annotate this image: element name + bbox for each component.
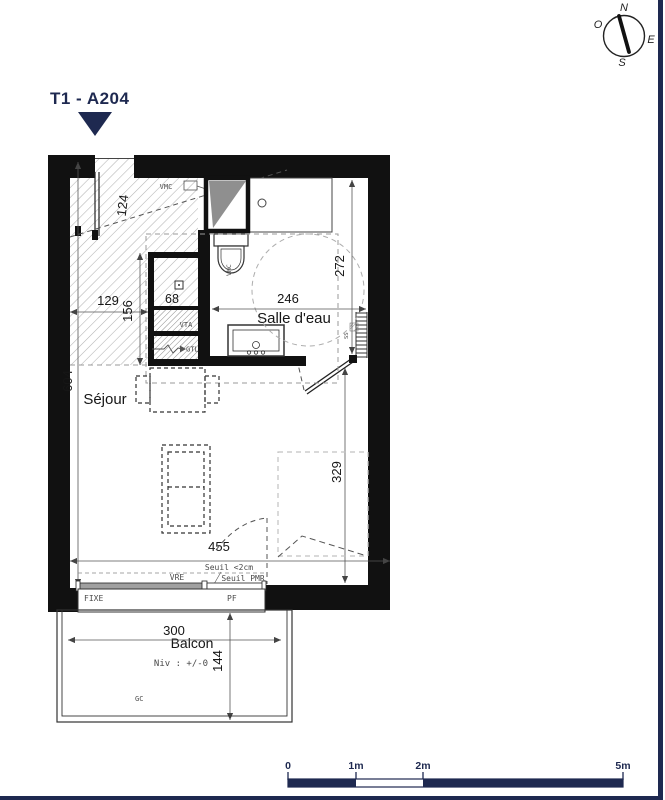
room-label-bathroom: Salle d'eau (257, 310, 331, 327)
floorplan-svg: T1 - A204 N E S O (0, 0, 665, 800)
compass-south: S (618, 57, 626, 69)
threshold-pmr-label: Seuil PMR (221, 574, 265, 583)
dim-604: 604 (60, 370, 75, 392)
dim-272: 272 (332, 255, 347, 277)
pmr-threshold (207, 583, 264, 589)
dim-129: 129 (97, 293, 119, 308)
room-label-living: Séjour (83, 391, 126, 408)
floorplan-sheet: T1 - A204 N E S O (0, 0, 665, 800)
vmc-label: VMC (160, 183, 173, 191)
vre-label: VRE (170, 573, 185, 582)
scale-bar: 0 1m 2m 5m (285, 760, 631, 787)
bathroom-door (298, 355, 357, 394)
dim-124: 124 (114, 194, 132, 217)
shower (206, 178, 332, 232)
plan-title: T1 - A204 (50, 89, 130, 108)
toilet: VMC (214, 234, 248, 276)
bed-inner (168, 452, 204, 526)
dim-246: 246 (277, 291, 299, 306)
scale-2m: 2m (415, 760, 430, 772)
scale-5m: 5m (615, 760, 630, 772)
scale-0: 0 (285, 760, 291, 772)
gtl-label: GTL (186, 346, 199, 354)
compass-east: E (647, 34, 655, 46)
fixe-label: FIXE (84, 594, 103, 603)
level-label: Niv : +/-0 (154, 659, 208, 669)
compass-north: N (620, 2, 628, 14)
bed-outer (162, 445, 210, 533)
sheet-border-bottom (0, 796, 663, 800)
sheet-border-right (658, 0, 663, 800)
vanity-sink (228, 325, 284, 356)
pf-label: PF (227, 594, 237, 603)
scale-1m: 1m (348, 760, 363, 772)
unit-marker-triangle-icon (78, 112, 112, 136)
table (150, 368, 205, 412)
compass-west: O (594, 19, 603, 31)
dim-144: 144 (210, 650, 225, 672)
dim-156: 156 (120, 300, 135, 322)
compass-rose-icon: N E S O (594, 2, 656, 69)
ss-label: SS (344, 332, 350, 339)
gc-label: GC (135, 695, 143, 703)
chair-right (205, 376, 219, 403)
window-band: Seuil <2cm VRE Seuil PMR FIXE PF (76, 563, 267, 612)
threshold-label: Seuil <2cm (205, 563, 253, 572)
closet-dim: 68 (165, 292, 179, 306)
toilet-vmc-label: VMC (225, 264, 233, 276)
sliding-window-vre (78, 583, 204, 589)
vta-label: VTA (180, 321, 193, 329)
dim-329: 329 (329, 461, 344, 483)
bed-zone-alt (278, 452, 368, 556)
chair-left (136, 376, 150, 403)
dim-300: 300 (163, 623, 185, 638)
